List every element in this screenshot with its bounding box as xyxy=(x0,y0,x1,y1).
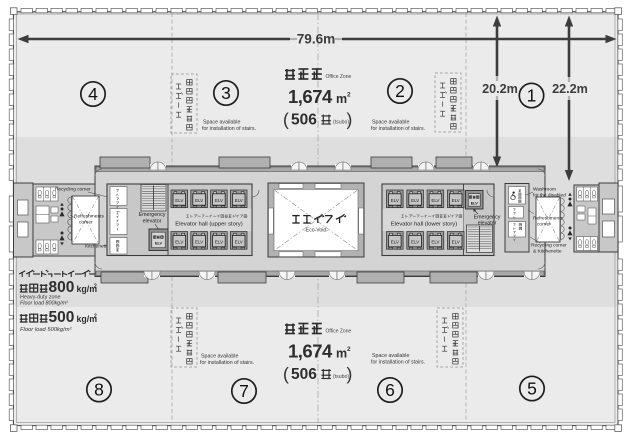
svg-text:20.2m: 20.2m xyxy=(482,82,518,96)
svg-text:Floor load 500kg/m²: Floor load 500kg/m² xyxy=(20,327,73,333)
svg-text:ELV: ELV xyxy=(411,198,419,203)
svg-text:): ) xyxy=(347,364,353,384)
svg-text:7: 7 xyxy=(239,381,249,401)
svg-text:ELV: ELV xyxy=(411,240,419,245)
svg-text:Washroom: Washroom xyxy=(533,187,556,193)
svg-text:2: 2 xyxy=(395,81,405,101)
svg-text:2: 2 xyxy=(347,346,351,353)
svg-text:ELV: ELV xyxy=(471,201,479,205)
svg-text:1,674: 1,674 xyxy=(288,341,333,362)
svg-text:corner: corner xyxy=(537,222,551,228)
svg-text:Office Zone: Office Zone xyxy=(326,74,352,80)
svg-text:ELV: ELV xyxy=(235,240,243,245)
svg-text:Space available: Space available xyxy=(372,353,409,359)
svg-text:for installation of stairs.: for installation of stairs. xyxy=(200,360,254,366)
svg-text:Refreshments: Refreshments xyxy=(74,214,104,220)
svg-text:ELV: ELV xyxy=(195,240,203,245)
svg-text:ELV: ELV xyxy=(452,198,460,203)
svg-text:1,674: 1,674 xyxy=(288,86,333,107)
svg-text:(: ( xyxy=(283,364,289,384)
svg-text:2: 2 xyxy=(347,92,351,99)
svg-text:ELV: ELV xyxy=(195,198,203,203)
svg-text:800: 800 xyxy=(49,279,75,296)
svg-text:elevator: elevator xyxy=(143,219,162,225)
svg-text:Floor load 800kg/m²: Floor load 800kg/m² xyxy=(20,301,68,307)
svg-text:ELV: ELV xyxy=(155,241,163,245)
svg-text:for installation of stairs.: for installation of stairs. xyxy=(371,126,425,132)
svg-text:ELV: ELV xyxy=(215,198,223,203)
svg-text:ELV: ELV xyxy=(391,198,399,203)
svg-text:m: m xyxy=(336,92,347,106)
svg-text:2: 2 xyxy=(94,284,97,290)
svg-text:): ) xyxy=(347,110,353,130)
svg-text:ELV: ELV xyxy=(215,240,223,245)
svg-text:6: 6 xyxy=(385,380,395,400)
svg-text:for installation of stairs.: for installation of stairs. xyxy=(202,126,256,132)
svg-text:8: 8 xyxy=(94,380,104,400)
svg-text:500: 500 xyxy=(49,309,75,326)
svg-text:Space available: Space available xyxy=(372,120,409,126)
svg-text:ELV: ELV xyxy=(431,240,439,245)
svg-text:Space available: Space available xyxy=(203,120,240,126)
svg-text:ELV: ELV xyxy=(175,198,183,203)
svg-text:1: 1 xyxy=(527,86,537,106)
svg-text:Refreshments: Refreshments xyxy=(533,216,563,222)
svg-text:ELV: ELV xyxy=(452,240,460,245)
svg-text:4: 4 xyxy=(88,84,98,104)
svg-text:506: 506 xyxy=(291,366,317,383)
svg-text:Elevator hall (upper story): Elevator hall (upper story) xyxy=(175,222,242,228)
svg-text:2: 2 xyxy=(94,314,97,320)
svg-text:ELV: ELV xyxy=(175,240,183,245)
svg-text:Recycling corner: Recycling corner xyxy=(55,187,91,193)
svg-text:ELV: ELV xyxy=(431,198,439,203)
svg-text:for installation of stairs.: for installation of stairs. xyxy=(371,360,425,366)
svg-text:& Kitchenette: & Kitchenette xyxy=(533,249,562,255)
svg-text:-Eco-Void-: -Eco-Void- xyxy=(304,228,328,234)
svg-text:ELV: ELV xyxy=(235,198,243,203)
svg-text:m: m xyxy=(336,347,347,361)
svg-text:Emergency: Emergency xyxy=(139,212,166,218)
svg-text:22.2m: 22.2m xyxy=(552,82,588,96)
svg-text:Elevator hall (lower story): Elevator hall (lower story) xyxy=(391,222,457,228)
svg-text:Recycling corner: Recycling corner xyxy=(531,243,567,249)
svg-text:506: 506 xyxy=(291,112,317,129)
svg-text:Kitchenette: Kitchenette xyxy=(85,244,109,250)
svg-text:corner: corner xyxy=(79,220,93,226)
svg-text:Space available: Space available xyxy=(201,354,238,360)
svg-text:ELV: ELV xyxy=(391,240,399,245)
svg-text:5: 5 xyxy=(527,379,537,399)
svg-text:79.6m: 79.6m xyxy=(297,32,336,47)
svg-text:for the disabled: for the disabled xyxy=(533,193,566,199)
svg-text:Office Zone: Office Zone xyxy=(326,329,352,335)
svg-text:(: ( xyxy=(283,110,289,130)
svg-text:3: 3 xyxy=(221,83,231,103)
